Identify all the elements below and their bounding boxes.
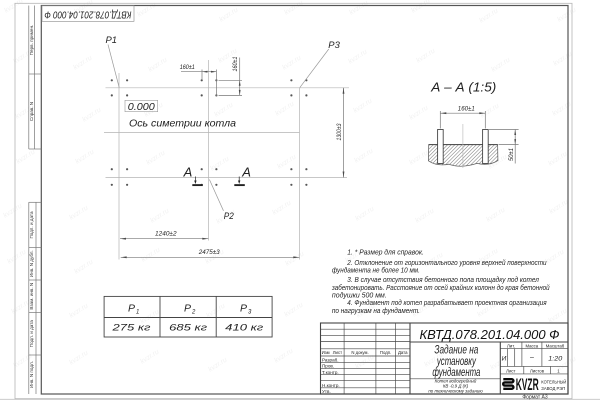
svg-text:1:20: 1:20 xyxy=(548,356,562,363)
svg-text:забетонировать. Расстояние от: забетонировать. Расстояние от осей крайн… xyxy=(331,284,550,292)
svg-text:–: – xyxy=(529,355,534,362)
svg-text:160±1: 160±1 xyxy=(180,64,195,71)
svg-text:Взам. инв. N: Взам. инв. N xyxy=(29,283,34,310)
svg-text:Подп. и дата: Подп. и дата xyxy=(29,211,34,239)
svg-text:Р1: Р1 xyxy=(106,35,118,46)
svg-text:Подп.: Подп. xyxy=(380,350,391,355)
svg-text:Листов: Листов xyxy=(530,368,545,373)
svg-text:Дата: Дата xyxy=(398,350,408,355)
svg-text:И: И xyxy=(502,355,507,362)
svg-text:1: 1 xyxy=(136,310,139,316)
svg-text:4. Фундамент под котел разраб: 4. Фундамент под котел разрабатывает про… xyxy=(347,299,547,307)
svg-text:Формат А3: Формат А3 xyxy=(522,395,547,400)
svg-text:Масштаб: Масштаб xyxy=(546,343,565,348)
svg-text:275 кг: 275 кг xyxy=(111,322,151,333)
svg-text:1300±3: 1300±3 xyxy=(336,123,343,140)
svg-text:установку: установку xyxy=(436,356,477,368)
svg-text:3. В случае отсутствия бетонн: 3. В случае отсутствия бетонного пола пл… xyxy=(347,276,539,284)
svg-text:А – А (1:5): А – А (1:5) xyxy=(430,79,496,94)
svg-text:А: А xyxy=(241,164,251,179)
svg-text:1. * Размер для справок.: 1. * Размер для справок. xyxy=(347,249,424,257)
svg-text:Лист: Лист xyxy=(506,368,515,373)
svg-text:2475±3: 2475±3 xyxy=(198,249,220,256)
svg-text:KVZR: KVZR xyxy=(516,375,539,394)
svg-text:1240±2: 1240±2 xyxy=(155,231,177,238)
svg-text:685 кг: 685 кг xyxy=(169,322,207,333)
svg-text:Подп. и дата: Подп. и дата xyxy=(29,320,34,348)
svg-text:0.000: 0.000 xyxy=(128,101,155,113)
svg-text:2. Отклонение от горизонтал: 2. Отклонение от горизонтального уровня … xyxy=(346,259,546,267)
svg-text:Задание на: Задание на xyxy=(434,344,478,356)
svg-text:по нагрузкам на фундамент.: по нагрузкам на фундамент. xyxy=(332,307,420,315)
svg-text:50±1: 50±1 xyxy=(508,148,515,161)
svg-text:по техническому заданию: по техническому заданию xyxy=(428,388,483,393)
svg-text:160±1: 160±1 xyxy=(232,57,239,72)
svg-text:Инв. N дубл.: Инв. N дубл. xyxy=(29,250,34,277)
svg-text:Справ. N: Справ. N xyxy=(29,102,34,121)
svg-text:Лист: Лист xyxy=(333,350,342,355)
svg-text:Перв. примен.: Перв. примен. xyxy=(29,25,34,56)
svg-text:Р2: Р2 xyxy=(224,211,235,222)
svg-text:А: А xyxy=(183,164,193,179)
svg-text:160±1: 160±1 xyxy=(458,105,475,112)
svg-text:ЗАВОД РЭП: ЗАВОД РЭП xyxy=(541,386,565,392)
svg-text:Т.контр.: Т.контр. xyxy=(322,370,339,375)
svg-text:КВТД.078.201.04.000 Ф: КВТД.078.201.04.000 Ф xyxy=(420,328,560,342)
svg-text:Н.контр.: Н.контр. xyxy=(322,383,340,388)
svg-text:Лит.: Лит. xyxy=(507,343,515,348)
svg-text:Р: Р xyxy=(240,303,247,315)
svg-text:Р3: Р3 xyxy=(328,40,340,51)
svg-text:Пров.: Пров. xyxy=(322,364,334,369)
svg-text:Р: Р xyxy=(184,303,191,315)
svg-text:КВТД.078.201.04.000 Ф: КВТД.078.201.04.000 Ф xyxy=(45,8,132,19)
svg-text:Ось симетрии котла: Ось симетрии котла xyxy=(129,119,237,130)
svg-text:Масса: Масса xyxy=(525,343,538,348)
svg-text:2: 2 xyxy=(191,310,196,316)
svg-text:Разраб.: Разраб. xyxy=(322,357,339,362)
svg-text:Р: Р xyxy=(128,303,135,315)
svg-text:Инв. N подл.: Инв. N подл. xyxy=(29,361,34,388)
svg-text:410 кг: 410 кг xyxy=(225,322,263,333)
svg-text:фундамента не более 10 мм.: фундамента не более 10 мм. xyxy=(332,267,420,275)
svg-text:подушки 500 мм.: подушки 500 мм. xyxy=(332,292,387,300)
svg-text:Утв.: Утв. xyxy=(322,389,331,394)
svg-text:Изм: Изм xyxy=(322,350,330,355)
svg-text:N докум.: N докум. xyxy=(351,350,368,355)
